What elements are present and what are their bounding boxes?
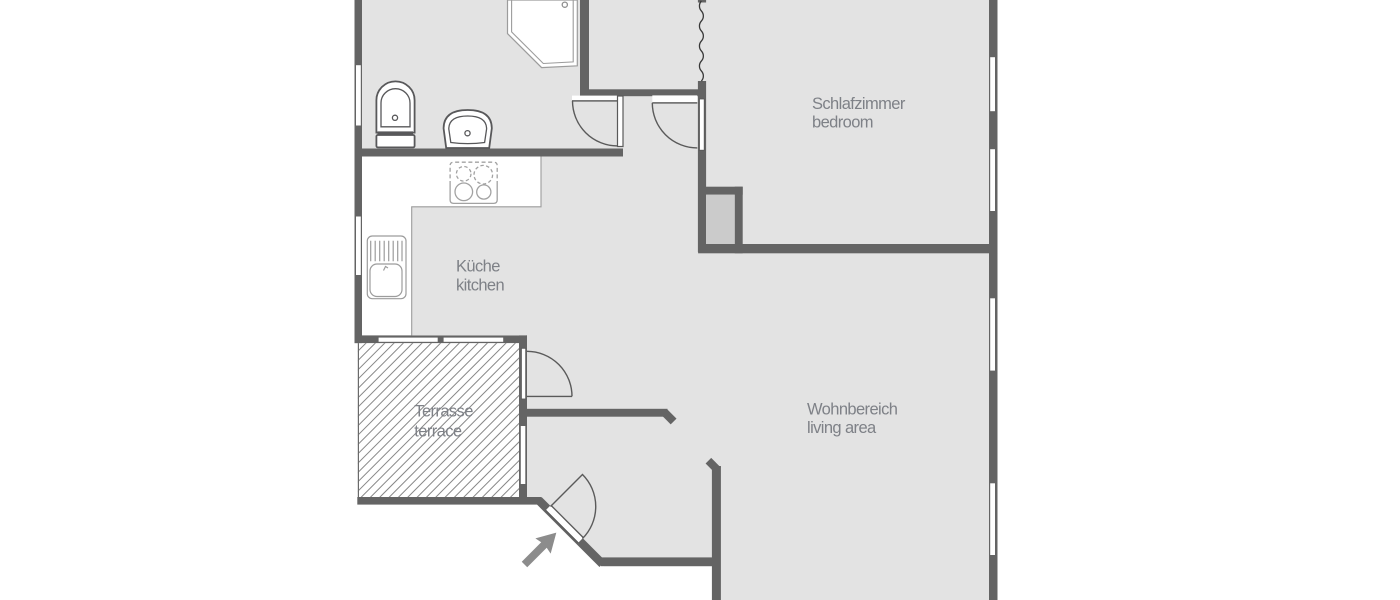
- svg-text:Terrasse: Terrasse: [414, 402, 473, 420]
- svg-text:Küche: Küche: [456, 258, 500, 276]
- svg-text:Schlafzimmer: Schlafzimmer: [812, 95, 906, 113]
- svg-text:kitchen: kitchen: [456, 276, 505, 294]
- svg-text:bedroom: bedroom: [812, 114, 873, 132]
- svg-text:Wohnbereich: Wohnbereich: [807, 401, 898, 419]
- svg-text:living area: living area: [807, 419, 877, 437]
- svg-text:terrace: terrace: [414, 422, 462, 440]
